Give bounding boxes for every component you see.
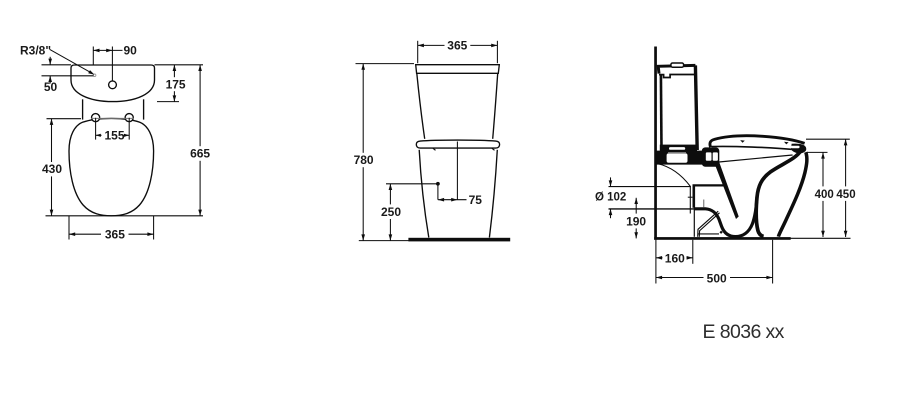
svg-text:155: 155 <box>104 129 124 143</box>
svg-text:75: 75 <box>469 193 483 207</box>
svg-text:430: 430 <box>42 162 62 176</box>
svg-text:E 8036 xx: E 8036 xx <box>703 321 785 343</box>
svg-text:Ø 102: Ø 102 <box>595 192 626 204</box>
svg-text:R3/8": R3/8" <box>20 43 51 57</box>
svg-text:190: 190 <box>626 214 646 228</box>
svg-text:90: 90 <box>124 44 138 58</box>
svg-text:250: 250 <box>381 205 401 219</box>
svg-text:665: 665 <box>190 147 210 161</box>
svg-text:160: 160 <box>665 252 685 266</box>
svg-text:400: 400 <box>815 189 834 201</box>
svg-text:780: 780 <box>354 153 374 167</box>
svg-text:365: 365 <box>447 39 467 53</box>
svg-text:500: 500 <box>707 271 727 285</box>
svg-text:50: 50 <box>44 80 58 94</box>
svg-text:365: 365 <box>105 227 125 241</box>
svg-text:175: 175 <box>166 77 186 91</box>
svg-text:450: 450 <box>836 189 855 201</box>
